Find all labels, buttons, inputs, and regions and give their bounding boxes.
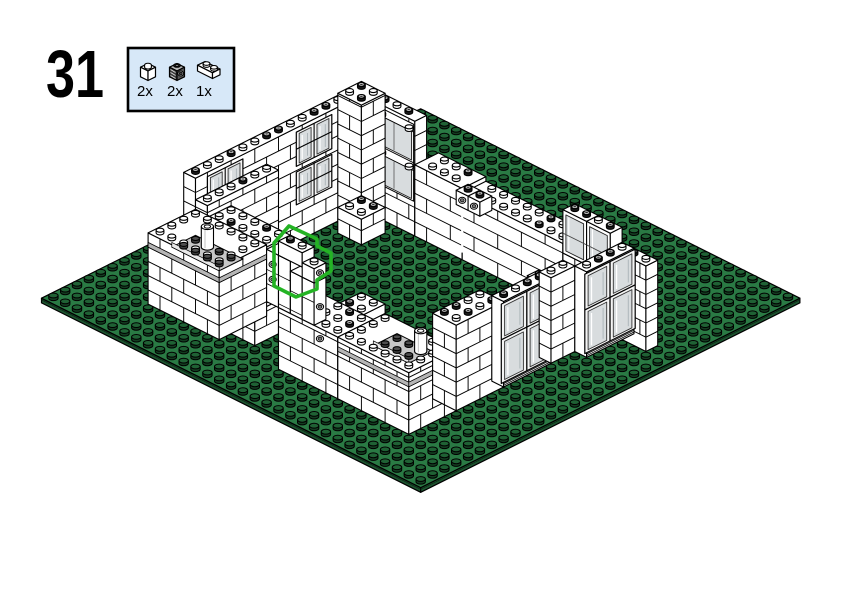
svg-text:2x: 2x xyxy=(167,83,183,100)
svg-text:31: 31 xyxy=(46,37,104,112)
svg-text:2x: 2x xyxy=(137,83,153,100)
svg-text:1x: 1x xyxy=(196,83,212,100)
